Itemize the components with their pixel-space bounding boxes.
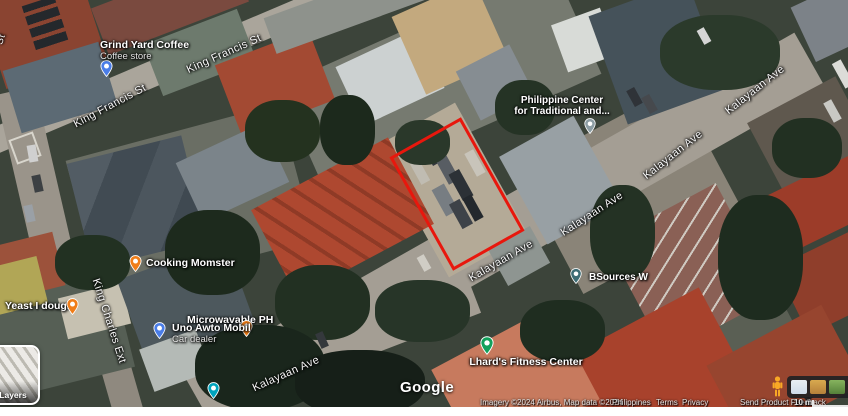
uno-awto-mobil-pin[interactable] — [153, 322, 166, 339]
google-logo[interactable]: Google — [400, 379, 454, 396]
tree-cluster — [375, 280, 470, 342]
map-type-thumb-terrain[interactable] — [829, 380, 845, 394]
cooking-momster-pin[interactable] — [129, 255, 142, 272]
attribution-imagery: Imagery ©2024 Airbus, Map data ©2024 — [480, 398, 623, 407]
poi-label-uno-awto-mobil[interactable]: Uno Awto Mobil — [172, 322, 251, 334]
attribution-link-philippines[interactable]: Philippines — [612, 398, 651, 407]
tree-cluster — [772, 118, 842, 178]
tree-cluster — [520, 300, 605, 362]
pegman-icon[interactable] — [771, 376, 784, 397]
poi-label-yeast-i-dough[interactable]: Yeast I dough — [5, 300, 73, 312]
scale-label: 10 m — [794, 398, 812, 407]
poi-label-cooking-momster[interactable]: Cooking Momster — [146, 257, 235, 269]
map-type-thumb-satellite[interactable] — [810, 380, 826, 394]
grind-yard-coffee-pin[interactable] — [100, 60, 113, 77]
map-type-thumb-default[interactable] — [791, 380, 807, 394]
scale-bar — [812, 400, 848, 407]
attribution-link-terms[interactable]: Terms — [656, 398, 678, 407]
poi-label-philippine-center-line1[interactable]: Philippine Center — [507, 95, 617, 106]
tree-cluster — [245, 100, 320, 162]
poi-label-bsources[interactable]: BSources W — [589, 272, 648, 283]
layers-button[interactable]: Layers — [0, 345, 40, 405]
poi-label-grind-yard-coffee[interactable]: Grind Yard Coffee — [100, 39, 189, 51]
poi-sublabel-coffee-store: Coffee store — [100, 51, 152, 62]
bsources-pin[interactable] — [570, 268, 582, 284]
tree-cluster — [165, 210, 260, 295]
map-type-panel — [787, 376, 848, 398]
poi-label-lhards-fitness[interactable]: Lhard's Fitness Center — [446, 356, 606, 368]
poi-sublabel-car-dealer: Car dealer — [172, 334, 216, 345]
tree-cluster — [320, 95, 375, 165]
poi-label-philippine-center-line2[interactable]: for Traditional and... — [507, 106, 617, 117]
poi-pin-teal[interactable] — [207, 382, 220, 399]
philippine-center-pin[interactable] — [584, 118, 596, 134]
lhards-fitness-pin[interactable] — [480, 336, 494, 355]
yeast-i-dough-pin[interactable] — [66, 298, 79, 315]
tree-cluster — [718, 195, 803, 320]
page-bottom-strip — [0, 407, 848, 416]
layers-label: Layers — [0, 390, 38, 400]
attribution-link-privacy[interactable]: Privacy — [682, 398, 708, 407]
map-viewport[interactable]: King Francis St King Francis St St Kalay… — [0, 0, 848, 416]
